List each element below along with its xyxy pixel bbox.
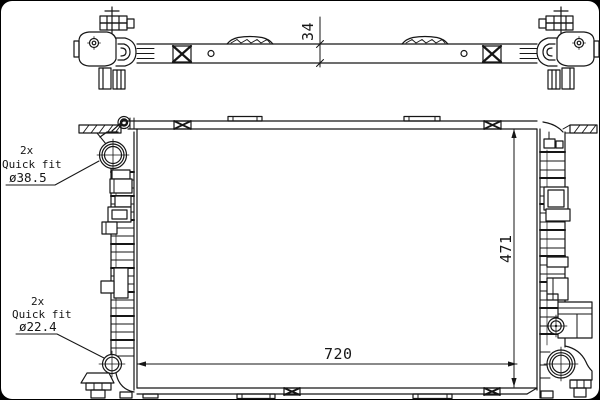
height-dimension-label: 471	[497, 234, 515, 263]
top-view: 34	[74, 7, 599, 89]
crossmember-bar	[137, 37, 537, 64]
depth-dimension-label: 34	[299, 22, 317, 41]
crimp-mark-icon	[174, 121, 191, 129]
bottom-rail	[137, 388, 537, 399]
left-foot-bracket	[81, 373, 134, 398]
top-left-mount	[74, 7, 136, 89]
dimension-width: 720	[137, 345, 517, 367]
width-dimension-label: 720	[324, 345, 353, 363]
drawing-canvas: 34	[0, 0, 600, 400]
callout-qty: 2x	[31, 295, 45, 308]
dimension-height: 471	[497, 129, 517, 387]
callout-qty: 2x	[20, 144, 34, 157]
top-rail	[112, 117, 537, 132]
dimension-depth: 34	[299, 17, 324, 67]
crimp-mark-icon	[483, 46, 501, 62]
rail-tab	[237, 394, 275, 399]
callout-diameter: ø22.4	[19, 319, 57, 334]
rail-tab	[413, 394, 452, 399]
bar-hump	[227, 37, 273, 45]
rail-tab	[143, 394, 158, 398]
callout-diameter: ø38.5	[9, 170, 47, 185]
leader-line	[16, 334, 104, 358]
crimp-mark-icon	[484, 121, 501, 129]
bar-hump	[402, 37, 448, 45]
front-view: 471 720 2x Quick fit ø38.5	[2, 117, 597, 399]
left-tank	[79, 117, 134, 399]
callout-upper-quick-fit: 2x Quick fit ø38.5	[2, 144, 99, 185]
callout-lower-quick-fit: 2x Quick fit ø22.4	[12, 295, 104, 358]
right-tank	[540, 122, 597, 398]
radiator-technical-drawing: 34	[0, 0, 600, 400]
bar-hole	[208, 51, 214, 57]
crimp-mark-icon	[173, 46, 191, 62]
top-right-mount	[537, 7, 599, 89]
upper-quick-fit-port	[97, 139, 129, 171]
bar-hole	[461, 51, 467, 57]
